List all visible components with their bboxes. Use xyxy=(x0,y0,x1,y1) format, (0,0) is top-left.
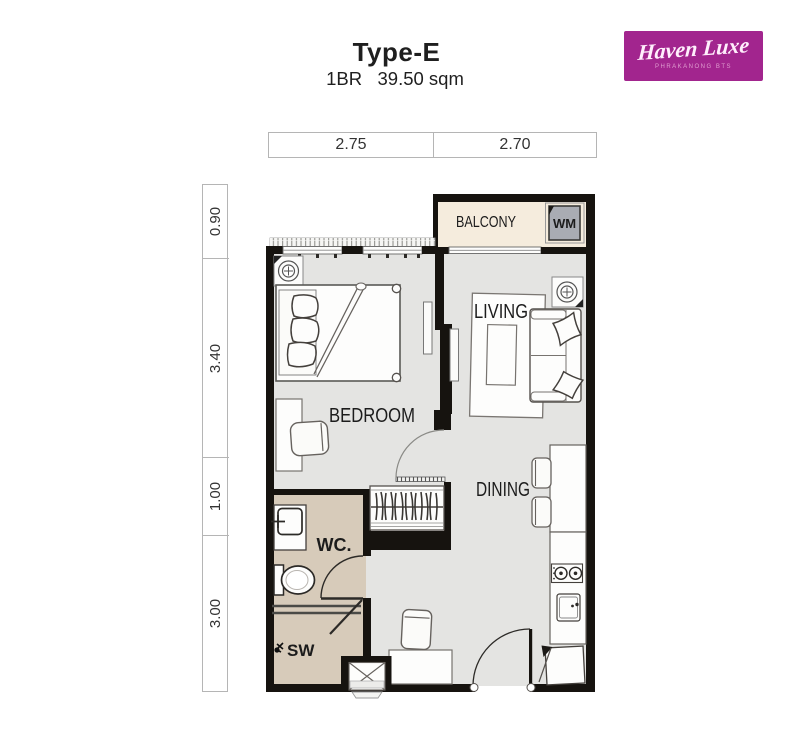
svg-text:DINING: DINING xyxy=(476,479,530,501)
svg-text:BALCONY: BALCONY xyxy=(456,214,516,231)
svg-text:WC.: WC. xyxy=(317,535,352,555)
svg-text:LIVING: LIVING xyxy=(474,301,528,323)
svg-text:WM: WM xyxy=(553,216,576,231)
svg-text:SW: SW xyxy=(287,641,315,660)
svg-text:BEDROOM: BEDROOM xyxy=(329,405,415,427)
